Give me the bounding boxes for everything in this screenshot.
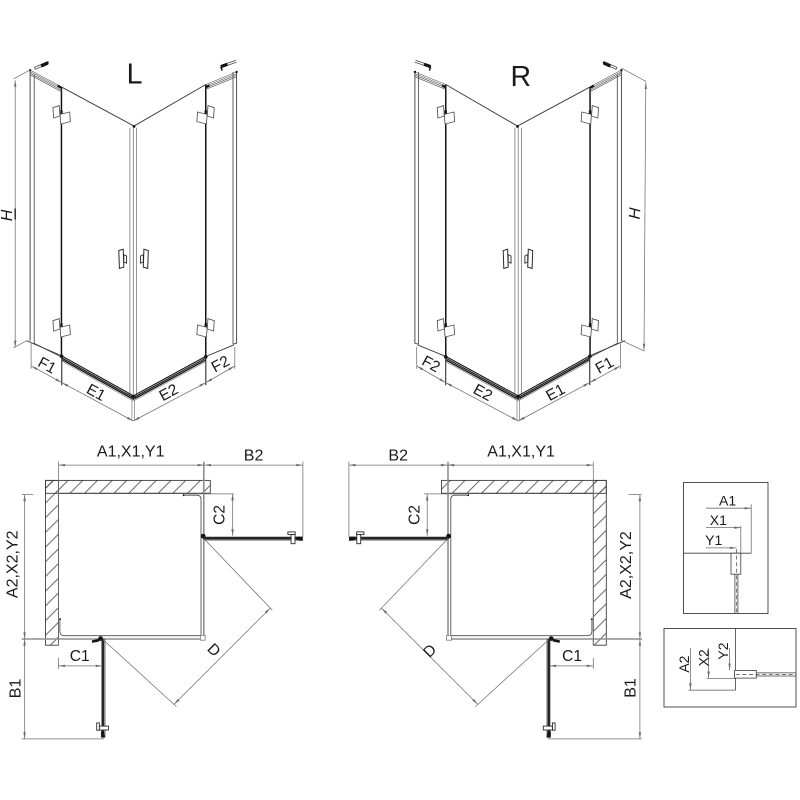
svg-text:Y1: Y1 [705, 532, 722, 548]
svg-text:C2: C2 [211, 505, 228, 525]
svg-text:Y2: Y2 [715, 642, 731, 659]
svg-text:C2: C2 [407, 505, 424, 525]
svg-text:L: L [127, 58, 143, 90]
svg-text:A1,X1,Y1: A1,X1,Y1 [487, 443, 555, 460]
svg-text:C1: C1 [562, 648, 582, 665]
svg-text:B1: B1 [623, 678, 640, 698]
svg-text:A2: A2 [676, 655, 692, 672]
svg-text:R: R [511, 61, 532, 93]
svg-text:B1: B1 [7, 679, 24, 699]
svg-text:X1: X1 [710, 512, 727, 528]
svg-text:H: H [0, 209, 16, 221]
svg-text:A1: A1 [719, 492, 736, 508]
svg-text:A2,X2,Y2: A2,X2,Y2 [5, 530, 22, 598]
svg-text:A1,X1,Y1: A1,X1,Y1 [97, 443, 165, 460]
svg-text:A2,X2,Y2: A2,X2,Y2 [618, 531, 635, 599]
svg-text:C1: C1 [70, 648, 90, 665]
svg-text:B2: B2 [244, 448, 264, 465]
svg-text:X2: X2 [695, 649, 711, 666]
svg-text:H: H [627, 207, 645, 220]
svg-text:B2: B2 [388, 448, 408, 465]
